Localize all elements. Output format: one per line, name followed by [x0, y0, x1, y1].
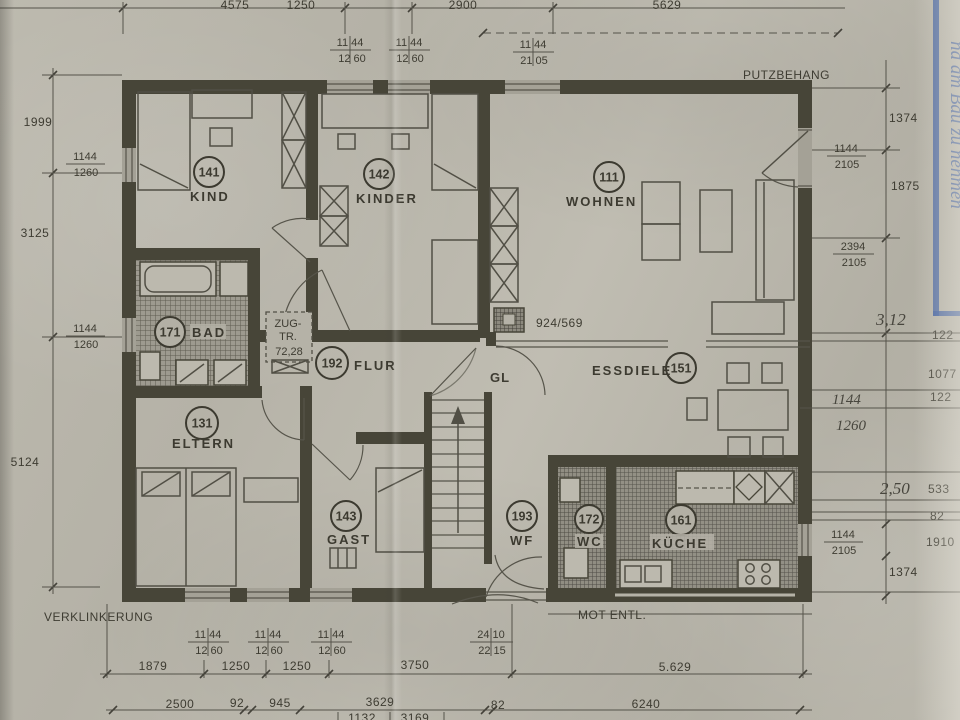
room-name: ELTERN	[172, 436, 235, 451]
dim-label: 1144	[834, 143, 858, 155]
dim-label: 5629	[653, 0, 682, 12]
room-name: WC	[577, 534, 603, 549]
stairs	[432, 400, 484, 548]
handwritten-3-12: 3,12	[875, 310, 906, 329]
room-name: WF	[510, 533, 534, 548]
putzbehang-label: PUTZBEHANG	[743, 68, 830, 82]
room-name: KINDER	[356, 191, 418, 206]
kitchen-stove	[738, 560, 780, 588]
dresser-eltern	[244, 478, 298, 502]
wardrobe-flur-mid	[320, 186, 348, 246]
dim-label: 3629	[366, 695, 395, 709]
toilet-bad	[140, 352, 160, 380]
dim-label: 1999	[24, 115, 53, 129]
shower	[220, 262, 248, 296]
door-flur-gl	[430, 346, 545, 396]
bed-gast	[376, 468, 424, 552]
dim-label: 1250	[283, 659, 312, 673]
dim-label: 12 60	[318, 645, 346, 657]
gl-door-label: GL	[490, 370, 510, 385]
toilet-wc	[564, 548, 588, 578]
room-gast: 143 GAST	[327, 501, 371, 547]
handwritten-2-50: 2,50	[880, 479, 910, 498]
bed-eltern	[136, 468, 236, 586]
verklinkerung-label: VERKLINKERUNG	[44, 610, 153, 624]
dim-chain-bottom: 11 44 12 60 11 44 12 60 11 44 12 60 24 1…	[100, 604, 812, 720]
dim-label: 12 60	[338, 53, 366, 65]
wardrobe-kind	[282, 92, 306, 188]
bed-kinder-right	[432, 94, 478, 190]
mot-entl: MOT ENTL.	[548, 608, 812, 622]
dim-label: 3750	[401, 658, 430, 672]
window-right-1	[798, 524, 812, 556]
dim-label: 122	[932, 328, 954, 342]
dim-label: 533	[928, 482, 950, 496]
dim-label: 1374	[889, 565, 918, 579]
zug-tr-line2: TR.	[279, 331, 297, 343]
room-eltern: 131 ELTERN	[172, 407, 235, 451]
mot-entl-label: MOT ENTL.	[578, 608, 646, 622]
bathtub	[140, 262, 216, 296]
dim-label: 92	[230, 696, 244, 710]
bed-kinder-top	[322, 94, 428, 128]
dim-label: 82	[930, 509, 944, 523]
window-dim-right-2: 2394 2105	[833, 241, 874, 269]
dim-label: 945	[269, 696, 291, 710]
room-name: ESSDIELE	[592, 363, 672, 378]
room-number: 171	[160, 326, 181, 340]
dim-label: 22 15	[478, 645, 506, 657]
kitchen-sink-unit	[620, 560, 672, 588]
sink-wc	[560, 478, 580, 502]
nightstand-kind	[210, 128, 232, 146]
bed-kinder-lower	[432, 240, 478, 324]
zug-tr-line3: 72,28	[275, 346, 303, 358]
window-dim-left-1: 1144 1260	[66, 151, 105, 179]
window-dim-right-1: 1144 2105	[827, 143, 866, 171]
shelf-wohnen	[490, 188, 518, 302]
nightstand-kinder-1	[338, 134, 355, 149]
room-name: WOHNEN	[566, 194, 637, 209]
room-number: 111	[599, 171, 619, 185]
door-gast	[312, 444, 363, 480]
dim-label: 1260	[74, 339, 98, 351]
window-left-2	[122, 318, 136, 352]
room-number: 142	[369, 168, 390, 182]
room-number: 161	[671, 514, 692, 528]
dim-label: 1910	[926, 535, 955, 549]
dim-label: 122	[930, 390, 952, 404]
window-top-2	[388, 80, 430, 94]
door-eltern	[262, 398, 304, 440]
room-number: 193	[512, 510, 533, 524]
room-name: GAST	[327, 532, 371, 547]
room-wohnen: 111 WOHNEN	[566, 162, 637, 209]
ref-number-label: 924/569	[536, 316, 583, 330]
dim-label: 1875	[891, 179, 920, 193]
room-number: 143	[336, 510, 357, 524]
stairs-up-arrow	[451, 406, 465, 424]
dim-label: 2900	[449, 0, 478, 12]
dim-label: 1879	[139, 659, 168, 673]
room-number: 151	[671, 362, 692, 376]
dim-label: 12 60	[396, 53, 424, 65]
window-left-1	[122, 148, 136, 182]
dim-label: 1144	[831, 529, 855, 541]
glass-partition	[496, 341, 810, 347]
window-dim-entrance: 24 10 22 15	[470, 628, 513, 657]
blue-line	[933, 0, 939, 316]
dim-chain-right-inner: 1374 1875 1374 1144 2105 2394 2105 1144 …	[812, 60, 920, 604]
handwritten-1260: 1260	[836, 418, 867, 434]
floor-plan-svg: ZUG- TR. 72,28 141 KIND 142 KINDER 111 W…	[0, 0, 960, 720]
balcony-door	[762, 128, 812, 188]
room-kind: 141 KIND	[190, 157, 230, 204]
window-top-1	[327, 80, 373, 94]
room-essdiele: ESSDIELE 151	[592, 353, 696, 383]
room-name: KÜCHE	[652, 536, 708, 551]
room-flur: 192 FLUR	[316, 347, 397, 379]
zug-tr-box: ZUG- TR. 72,28	[266, 312, 312, 373]
dim-label: 5.629	[659, 660, 692, 674]
blue-line-stub	[933, 311, 960, 316]
dim-label: 1077	[928, 367, 957, 381]
dim-label: 2105	[842, 257, 866, 269]
window-dim-top-2: 11 44 12 60	[389, 36, 430, 65]
dim-label: 1144	[73, 151, 97, 163]
window-dim-right-3: 1144 2105	[824, 529, 863, 557]
door-kind	[272, 218, 310, 262]
dim-label: 12 60	[195, 645, 223, 657]
zug-tr-line1: ZUG-	[275, 318, 302, 330]
room-number: 172	[579, 513, 600, 527]
scanned-floor-plan: ZUG- TR. 72,28 141 KIND 142 KINDER 111 W…	[0, 0, 960, 720]
blue-pen-marks: nd am Bau zu nehmen	[933, 0, 960, 316]
dim-label: 5124	[11, 455, 40, 469]
desk-kind	[192, 90, 252, 118]
window-dim-top-3: 11 44 21 05	[513, 38, 554, 67]
dim-chain-top: 4575 1250 2900 5629 11 44 12 60 11 44 12…	[0, 0, 845, 67]
chimney	[494, 308, 524, 332]
dim-label: 1374	[889, 111, 918, 125]
room-number: 131	[192, 417, 213, 431]
dim-label: 1144	[73, 323, 97, 335]
kitchen-counter-top	[676, 471, 794, 504]
window-dim-bottom-3: 11 44 12 60	[311, 628, 352, 657]
window-dim-bottom-2: 11 44 12 60	[248, 628, 289, 657]
dim-chain-right-outer: 122 1077 122 533 82 1910 1144 1260 2,50	[800, 322, 960, 604]
window-top-3	[505, 80, 560, 94]
dim-label: 2500	[166, 697, 195, 711]
dim-label: 21 05	[520, 55, 548, 67]
table-gast	[330, 548, 356, 568]
room-name: BAD	[192, 325, 226, 340]
dim-label: 3125	[21, 226, 50, 240]
dim-label: 2394	[841, 241, 865, 253]
dim-label: 2105	[835, 159, 859, 171]
seating-wohnen	[642, 180, 794, 334]
room-wc: 172 WC	[575, 505, 603, 549]
dim-label: 1250	[287, 0, 316, 12]
dim-label: 82	[491, 698, 505, 712]
handwritten-1144: 1144	[832, 392, 861, 408]
room-name: KIND	[190, 189, 230, 204]
dim-label: 1250	[222, 659, 251, 673]
window-bottom-2	[247, 588, 289, 602]
window-dim-bottom-1: 11 44 12 60	[188, 628, 229, 657]
window-dim-top-1: 11 44 12 60	[330, 36, 371, 65]
blue-handwriting: nd am Bau zu nehmen	[946, 41, 960, 209]
dim-label: 6240	[632, 697, 661, 711]
bed-kind	[138, 92, 190, 190]
window-bottom-3	[310, 588, 352, 602]
window-bottom-1	[185, 588, 230, 602]
dim-label: 12 60	[255, 645, 283, 657]
room-number: 192	[322, 357, 343, 371]
dim-label: 1132	[348, 711, 376, 720]
dim-label: 1260	[74, 167, 98, 179]
nightstand-kinder-2	[392, 134, 409, 149]
dim-label: 4575	[221, 0, 250, 12]
dim-label: 3169	[401, 711, 430, 720]
room-wf: 193 WF	[507, 501, 537, 548]
dim-label: 2105	[832, 545, 856, 557]
dim-chain-left: 1999 3125 5124 1144 1260 1144 1260	[11, 68, 122, 594]
room-name: FLUR	[354, 358, 397, 373]
room-kinder: 142 KINDER	[356, 159, 418, 206]
dining-set	[687, 363, 788, 457]
room-number: 141	[199, 166, 220, 180]
